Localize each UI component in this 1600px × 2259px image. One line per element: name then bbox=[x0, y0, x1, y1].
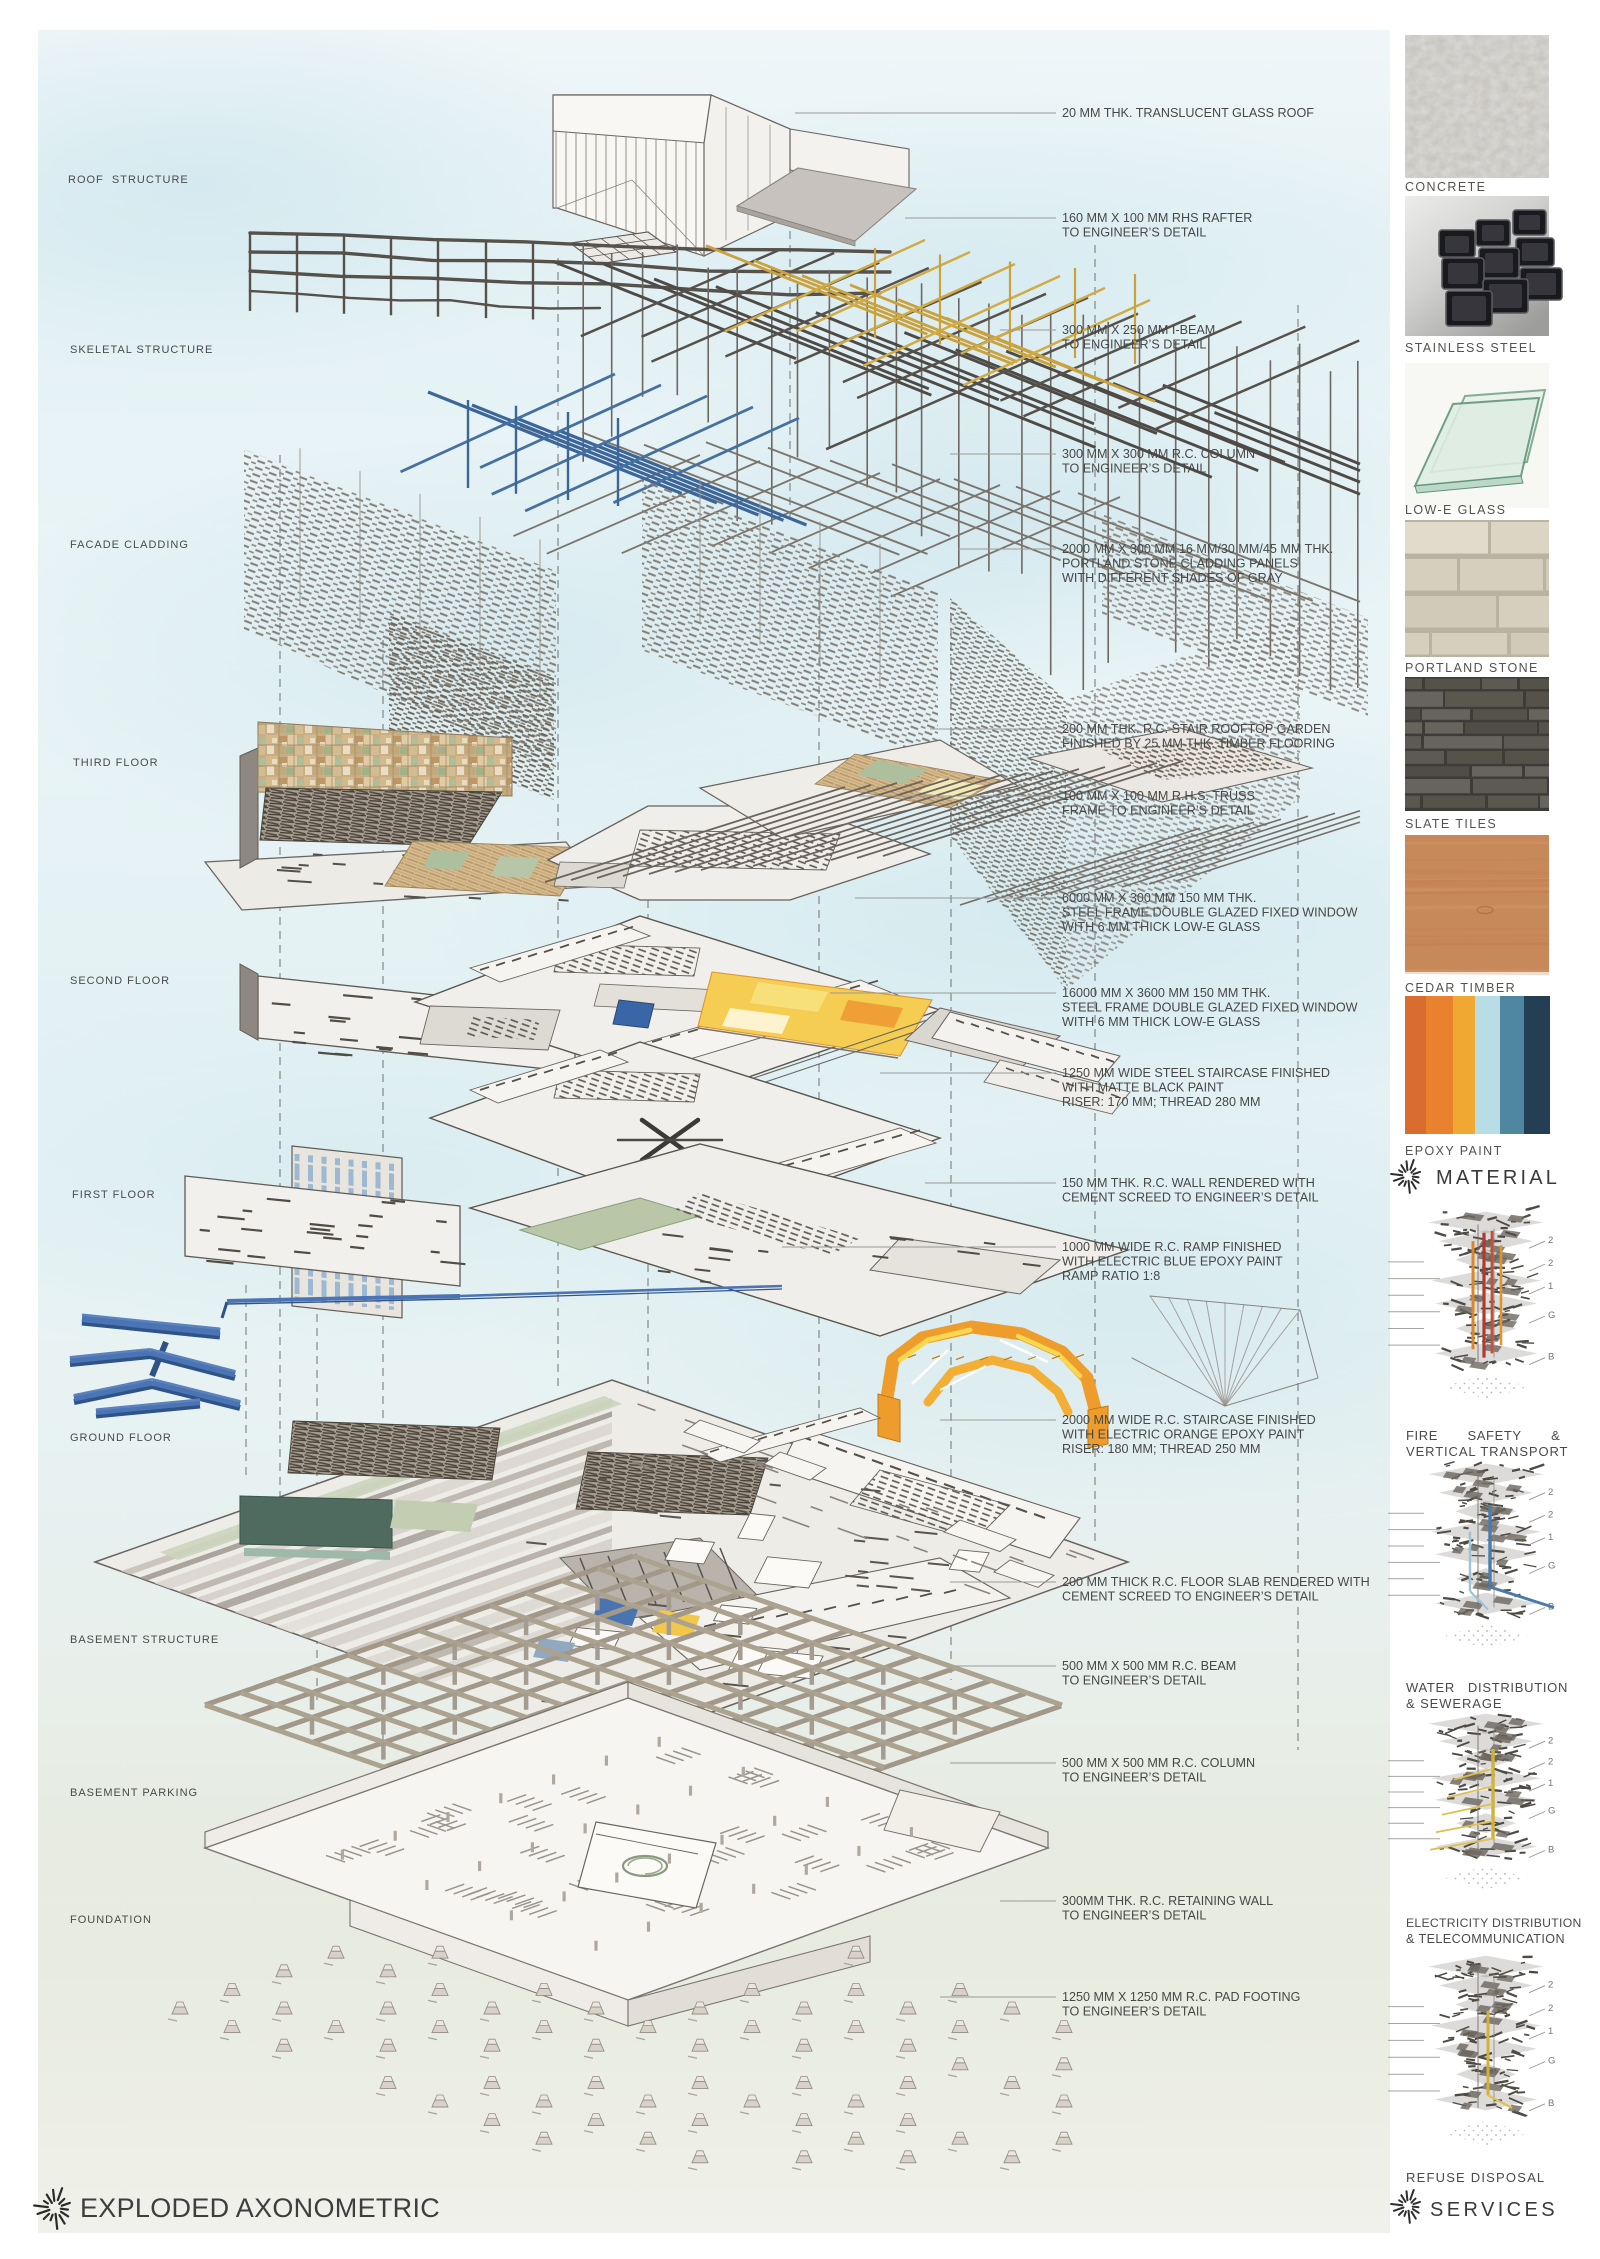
svg-text:STAINLESS STEEL: STAINLESS STEEL bbox=[1405, 341, 1537, 355]
svg-text:CEMENT SCREED TO ENGINEER’S DE: CEMENT SCREED TO ENGINEER’S DETAIL bbox=[1062, 1590, 1319, 1604]
svg-text:ROOF STRUCTURE: ROOF STRUCTURE bbox=[68, 174, 189, 186]
svg-text:TO ENGINEER’S DETAIL: TO ENGINEER’S DETAIL bbox=[1062, 1674, 1206, 1688]
svg-text:LOW-E GLASS: LOW-E GLASS bbox=[1405, 503, 1506, 517]
svg-text:1250 MM X 1250 MM R.C. PAD FOO: 1250 MM X 1250 MM R.C. PAD FOOTING bbox=[1062, 1990, 1300, 2004]
svg-text:WITH DIFFERENT SHADES OF GRAY: WITH DIFFERENT SHADES OF GRAY bbox=[1062, 571, 1283, 585]
svg-text:300 MM X 250 MM I-BEAM: 300 MM X 250 MM I-BEAM bbox=[1062, 323, 1215, 337]
svg-text:CEDAR TIMBER: CEDAR TIMBER bbox=[1405, 981, 1516, 995]
svg-text:ELECTRICITY DISTRIBUTION: ELECTRICITY DISTRIBUTION bbox=[1406, 1916, 1582, 1930]
svg-text:TO ENGINEER’S DETAIL: TO ENGINEER’S DETAIL bbox=[1062, 338, 1206, 352]
svg-text:STEEL FRAME DOUBLE GLAZED FIXE: STEEL FRAME DOUBLE GLAZED FIXED WINDOW bbox=[1062, 1001, 1358, 1015]
svg-text:2: 2 bbox=[1548, 1757, 1553, 1768]
svg-text:WITH 6 MM THICK LOW-E GLASS: WITH 6 MM THICK LOW-E GLASS bbox=[1062, 920, 1260, 934]
svg-text:SECOND FLOOR: SECOND FLOOR bbox=[70, 975, 170, 987]
svg-text:& SEWERAGE: & SEWERAGE bbox=[1406, 1696, 1502, 1711]
svg-text:& TELECOMMUNICATION: & TELECOMMUNICATION bbox=[1406, 1932, 1565, 1946]
svg-text:B: B bbox=[1548, 1352, 1554, 1363]
svg-text:FIRE SAFETY &: FIRE SAFETY & bbox=[1406, 1428, 1560, 1443]
svg-text:WITH MATTE BLACK PAINT: WITH MATTE BLACK PAINT bbox=[1062, 1081, 1224, 1095]
svg-text:CEMENT SCREED TO ENGINEER’S DE: CEMENT SCREED TO ENGINEER’S DETAIL bbox=[1062, 1191, 1319, 1205]
svg-text:WATER DISTRIBUTION: WATER DISTRIBUTION bbox=[1406, 1680, 1568, 1695]
svg-text:SLATE TILES: SLATE TILES bbox=[1405, 817, 1497, 831]
svg-text:2: 2 bbox=[1548, 1235, 1553, 1246]
svg-text:FIRST FLOOR: FIRST FLOOR bbox=[72, 1189, 156, 1201]
svg-text:G: G bbox=[1548, 1805, 1555, 1816]
svg-text:2: 2 bbox=[1548, 1487, 1553, 1498]
svg-text:FRAME TO ENGINEER’S DETAIL: FRAME TO ENGINEER’S DETAIL bbox=[1062, 804, 1254, 818]
svg-text:16000 MM X 3600 MM 150 MM THK.: 16000 MM X 3600 MM 150 MM THK. bbox=[1062, 986, 1270, 1000]
svg-text:100 MM X 100 MM R.H.S. TRUSS: 100 MM X 100 MM R.H.S. TRUSS bbox=[1062, 789, 1255, 803]
svg-text:BASEMENT PARKING: BASEMENT PARKING bbox=[70, 1787, 198, 1799]
svg-text:150 MM THK. R.C. WALL RENDERED: 150 MM THK. R.C. WALL RENDERED WITH bbox=[1062, 1176, 1315, 1190]
svg-text:1000 MM WIDE R.C. RAMP FINISHE: 1000 MM WIDE R.C. RAMP FINISHED bbox=[1062, 1240, 1282, 1254]
svg-text:20 MM THK. TRANSLUCENT GLASS R: 20 MM THK. TRANSLUCENT GLASS ROOF bbox=[1062, 106, 1314, 120]
svg-text:EXPLODED AXONOMETRIC: EXPLODED AXONOMETRIC bbox=[80, 2193, 440, 2223]
svg-text:WITH 6 MM THICK LOW-E GLASS: WITH 6 MM THICK LOW-E GLASS bbox=[1062, 1015, 1260, 1029]
svg-text:BASEMENT STRUCTURE: BASEMENT STRUCTURE bbox=[70, 1634, 219, 1646]
svg-text:STEEL FRAME DOUBLE GLAZED FIXE: STEEL FRAME DOUBLE GLAZED FIXED WINDOW bbox=[1062, 906, 1358, 920]
svg-text:1250 MM WIDE STEEL STAIRCASE F: 1250 MM WIDE STEEL STAIRCASE FINISHED bbox=[1062, 1066, 1330, 1080]
svg-text:G: G bbox=[1548, 1310, 1555, 1321]
svg-text:200 MM THK. R.C. STAIR ROOFTOP: 200 MM THK. R.C. STAIR ROOFTOP GARDEN bbox=[1062, 722, 1330, 736]
svg-text:1: 1 bbox=[1548, 1532, 1553, 1543]
svg-text:500 MM X 500 MM R.C. COLUMN: 500 MM X 500 MM R.C. COLUMN bbox=[1062, 1756, 1255, 1770]
svg-text:500 MM X 500 MM R.C. BEAM: 500 MM X 500 MM R.C. BEAM bbox=[1062, 1659, 1236, 1673]
svg-text:300MM THK. R.C. RETAINING WALL: 300MM THK. R.C. RETAINING WALL bbox=[1062, 1894, 1273, 1908]
svg-text:WITH ELECTRIC BLUE EPOXY PAINT: WITH ELECTRIC BLUE EPOXY PAINT bbox=[1062, 1255, 1283, 1269]
svg-text:G: G bbox=[1548, 2056, 1555, 2067]
svg-text:RISER: 180 MM; THREAD 250 MM: RISER: 180 MM; THREAD 250 MM bbox=[1062, 1442, 1261, 1456]
svg-text:FACADE CLADDING: FACADE CLADDING bbox=[70, 539, 189, 551]
svg-text:6000 MM X 300 MM 150 MM THK.: 6000 MM X 300 MM 150 MM THK. bbox=[1062, 891, 1256, 905]
svg-text:FINISHED BY 25 MM THK. TIMBER: FINISHED BY 25 MM THK. TIMBER FLOORING bbox=[1062, 737, 1335, 751]
svg-text:1: 1 bbox=[1548, 1281, 1553, 1292]
svg-text:RAMP RATIO 1:8: RAMP RATIO 1:8 bbox=[1062, 1269, 1160, 1283]
svg-text:200 MM THICK R.C. FLOOR SLAB R: 200 MM THICK R.C. FLOOR SLAB RENDERED WI… bbox=[1062, 1575, 1370, 1589]
svg-text:1: 1 bbox=[1548, 1778, 1553, 1789]
svg-text:2: 2 bbox=[1548, 1258, 1553, 1269]
svg-text:G: G bbox=[1548, 1561, 1555, 1572]
svg-text:2000 MM X 300 MM 16 MM/30 MM/4: 2000 MM X 300 MM 16 MM/30 MM/45 MM THK. bbox=[1062, 542, 1333, 556]
svg-text:TO ENGINEER’S DETAIL: TO ENGINEER’S DETAIL bbox=[1062, 1771, 1206, 1785]
svg-text:FOUNDATION: FOUNDATION bbox=[70, 1914, 152, 1926]
svg-text:160 MM X 100 MM RHS RAFTER: 160 MM X 100 MM RHS RAFTER bbox=[1062, 211, 1252, 225]
svg-text:2: 2 bbox=[1548, 1980, 1553, 1991]
svg-text:B: B bbox=[1548, 2098, 1554, 2109]
svg-text:B: B bbox=[1548, 1844, 1554, 1855]
svg-text:PORTLAND STONE CLADDING PANELS: PORTLAND STONE CLADDING PANELS bbox=[1062, 557, 1298, 571]
svg-text:TO ENGINEER’S DETAIL: TO ENGINEER’S DETAIL bbox=[1062, 462, 1206, 476]
svg-text:WITH ELECTRIC ORANGE EPOXY PAI: WITH ELECTRIC ORANGE EPOXY PAINT bbox=[1062, 1428, 1305, 1442]
svg-text:TO ENGINEER’S DETAIL: TO ENGINEER’S DETAIL bbox=[1062, 1909, 1206, 1923]
svg-text:1: 1 bbox=[1548, 2026, 1553, 2037]
svg-text:RISER: 170 MM; THREAD 280 MM: RISER: 170 MM; THREAD 280 MM bbox=[1062, 1095, 1261, 1109]
svg-text:2: 2 bbox=[1548, 1735, 1553, 1746]
svg-text:GROUND FLOOR: GROUND FLOOR bbox=[70, 1432, 172, 1444]
svg-text:THIRD FLOOR: THIRD FLOOR bbox=[73, 757, 159, 769]
svg-text:TO ENGINEER’S DETAIL: TO ENGINEER’S DETAIL bbox=[1062, 226, 1206, 240]
svg-text:CONCRETE: CONCRETE bbox=[1405, 180, 1486, 194]
svg-text:300 MM X 300 MM R.C. COLUMN: 300 MM X 300 MM R.C. COLUMN bbox=[1062, 447, 1255, 461]
svg-text:2000 MM WIDE R.C. STAIRCASE FI: 2000 MM WIDE R.C. STAIRCASE FINISHED bbox=[1062, 1413, 1316, 1427]
svg-text:MATERIAL: MATERIAL bbox=[1436, 1167, 1560, 1189]
svg-text:REFUSE DISPOSAL: REFUSE DISPOSAL bbox=[1406, 2170, 1545, 2185]
svg-text:TO ENGINEER’S DETAIL: TO ENGINEER’S DETAIL bbox=[1062, 2005, 1206, 2019]
svg-text:SKELETAL STRUCTURE: SKELETAL STRUCTURE bbox=[70, 344, 213, 356]
svg-text:VERTICAL TRANSPORT: VERTICAL TRANSPORT bbox=[1406, 1444, 1568, 1459]
svg-text:2: 2 bbox=[1548, 1509, 1553, 1520]
svg-text:SERVICES: SERVICES bbox=[1430, 2199, 1558, 2221]
svg-text:PORTLAND STONE: PORTLAND STONE bbox=[1405, 661, 1539, 675]
svg-text:EPOXY PAINT: EPOXY PAINT bbox=[1405, 1144, 1503, 1158]
svg-text:2: 2 bbox=[1548, 2003, 1553, 2014]
